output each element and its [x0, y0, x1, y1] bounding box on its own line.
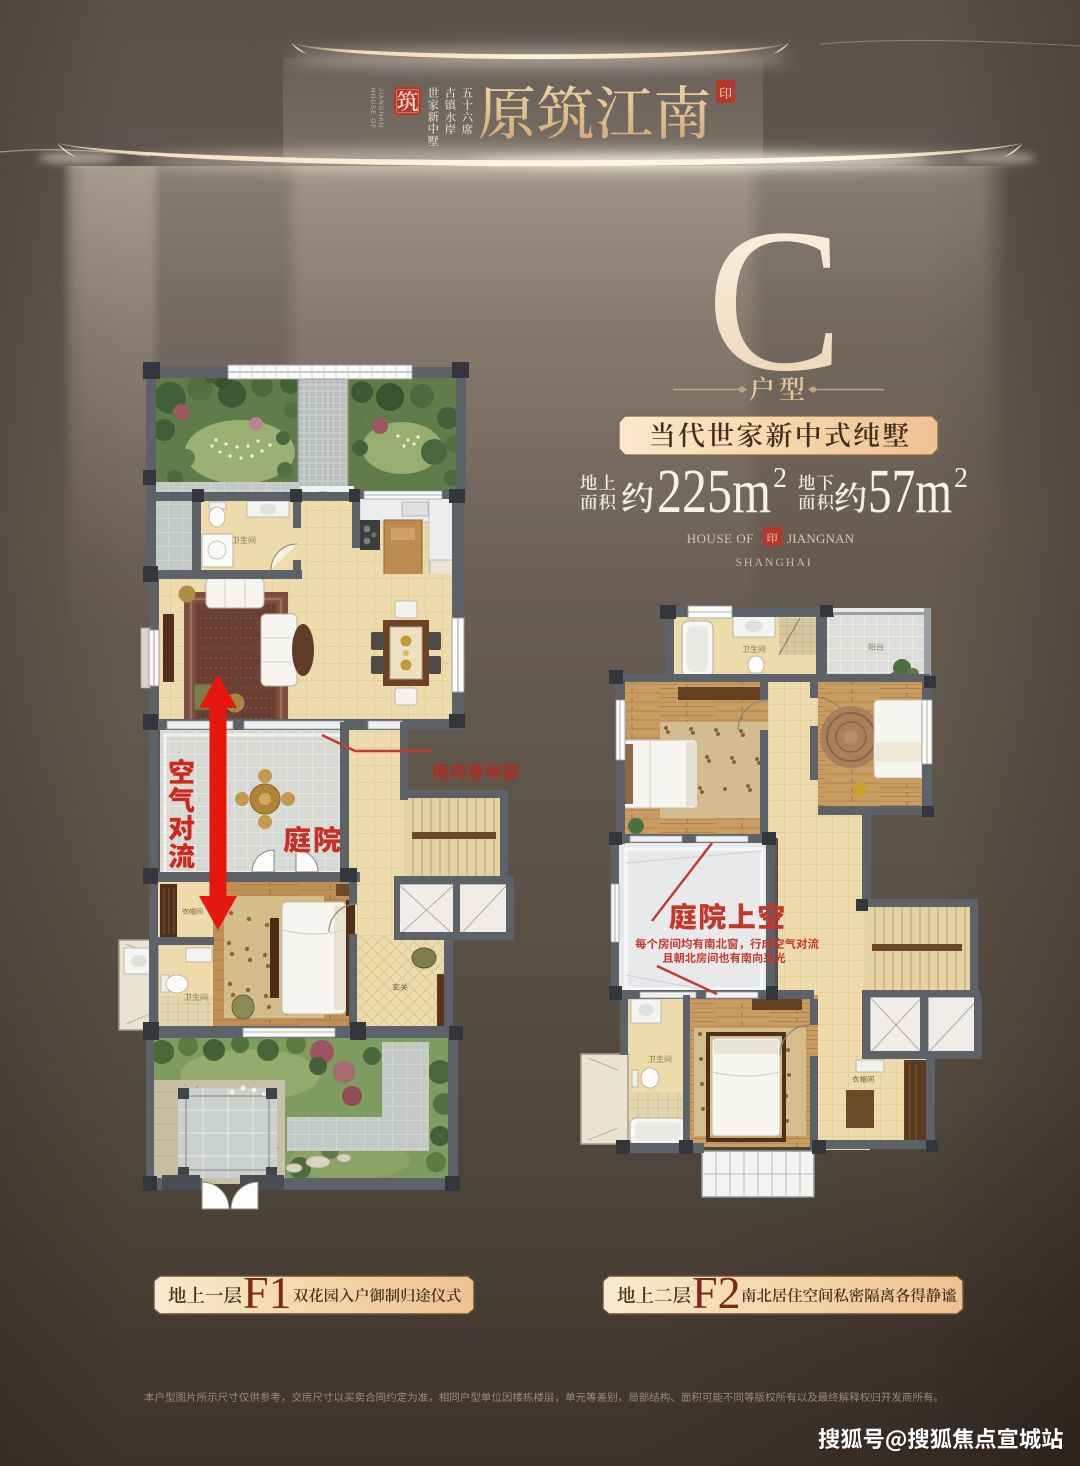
svg-text:HOUSE OF: HOUSE OF — [369, 88, 376, 129]
svg-text:JIANGNAN: JIANGNAN — [787, 531, 855, 546]
svg-text:F2: F2 — [692, 1267, 741, 1318]
svg-text:C: C — [707, 210, 844, 414]
svg-text:225m: 225m — [657, 458, 771, 526]
svg-text:HOUSE OF: HOUSE OF — [687, 531, 754, 546]
svg-text:2: 2 — [773, 463, 787, 494]
svg-text:57m: 57m — [868, 458, 952, 526]
svg-text:F1: F1 — [243, 1267, 292, 1318]
svg-text:JIANGNAN: JIANGNAN — [377, 88, 384, 128]
svg-text:SHANGHAI: SHANGHAI — [735, 555, 812, 569]
svg-text:2: 2 — [954, 463, 968, 494]
